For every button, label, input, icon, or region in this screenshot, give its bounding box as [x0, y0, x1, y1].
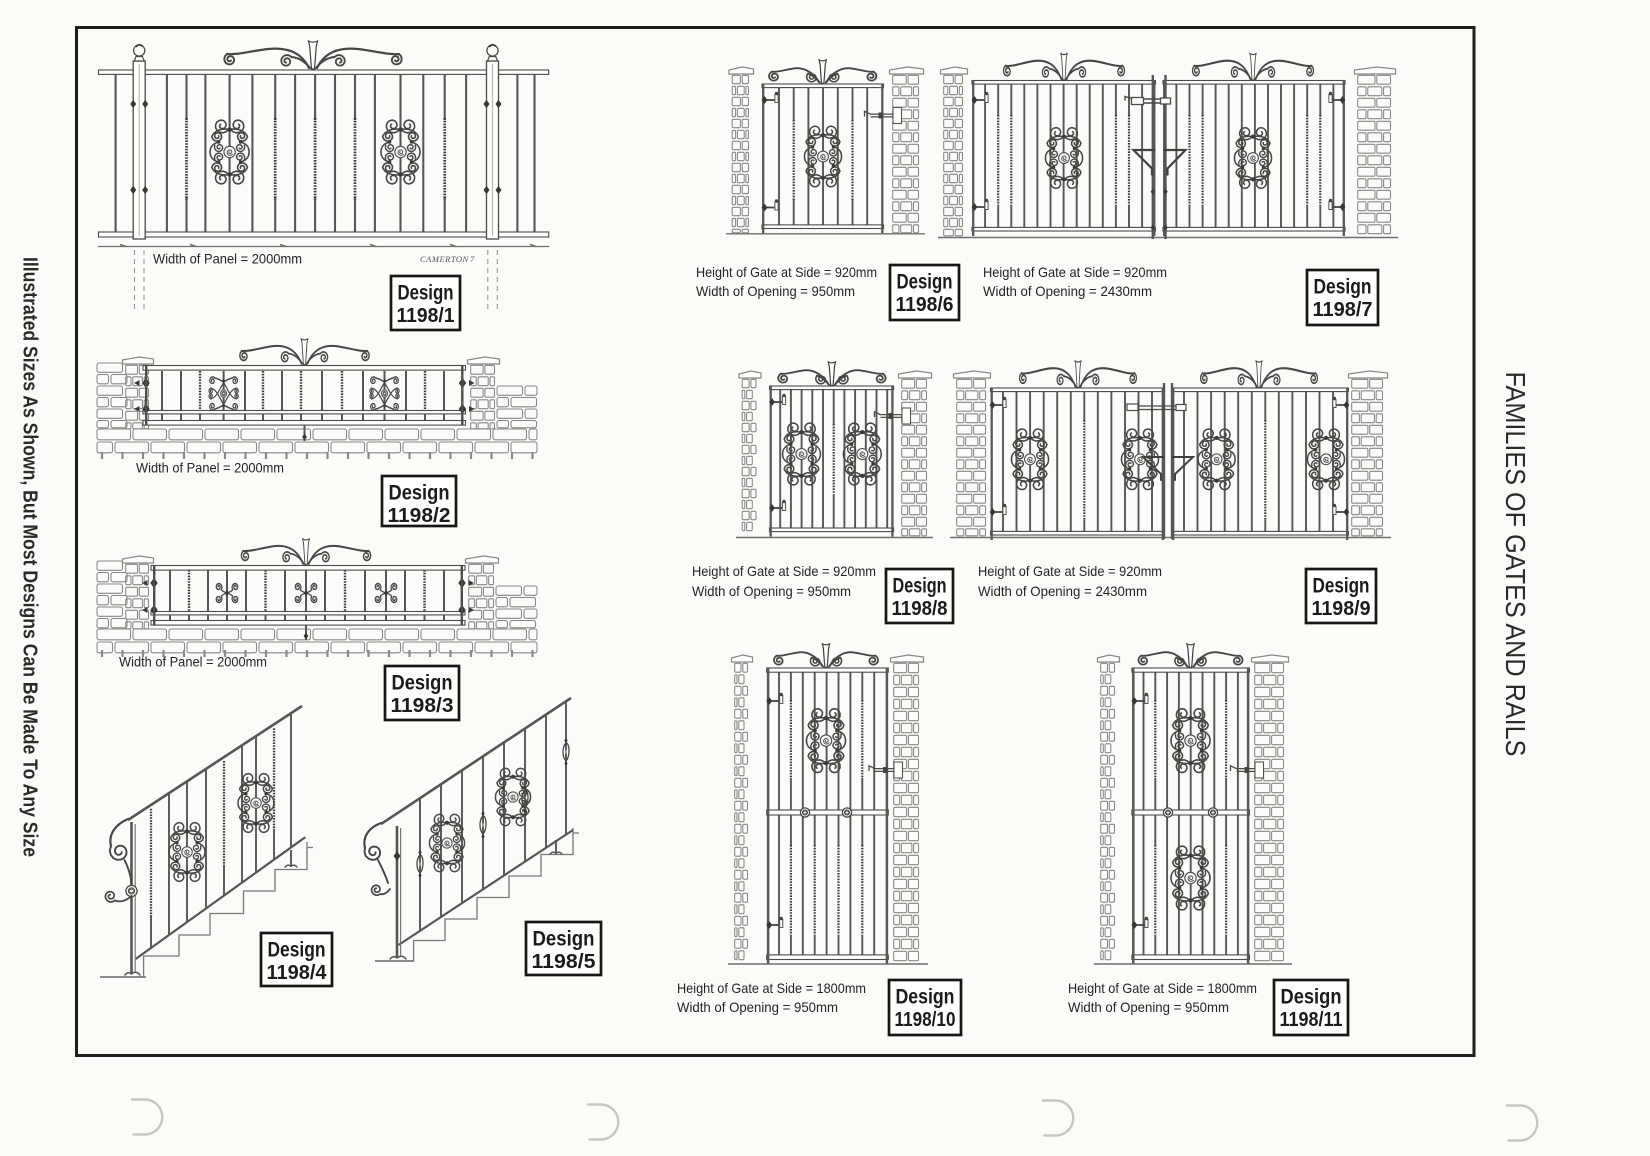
- svg-text:Design: Design: [268, 938, 326, 962]
- svg-text:Design: Design: [398, 281, 454, 305]
- svg-text:Design: Design: [896, 985, 955, 1009]
- svg-text:Height of Gate at Side = 920mm: Height of Gate at Side = 920mm: [696, 264, 877, 280]
- svg-text:Design: Design: [389, 481, 450, 505]
- svg-text:1198/10: 1198/10: [895, 1008, 956, 1031]
- svg-text:1198/6: 1198/6: [896, 293, 954, 316]
- svg-text:Design: Design: [1314, 275, 1372, 299]
- svg-text:1198/4: 1198/4: [267, 961, 328, 984]
- svg-text:Design: Design: [893, 574, 947, 598]
- svg-text:Height of Gate at Side = 920mm: Height of Gate at Side = 920mm: [978, 563, 1162, 579]
- svg-text:Width of Opening = 950mm: Width of Opening = 950mm: [677, 999, 838, 1015]
- svg-text:CAMERTON: CAMERTON: [420, 254, 470, 264]
- svg-text:Height of Gate at Side = 1800m: Height of Gate at Side = 1800mm: [1068, 980, 1257, 996]
- svg-text:Design: Design: [392, 671, 453, 695]
- svg-text:Width of Panel = 2000mm: Width of Panel = 2000mm: [136, 460, 284, 476]
- svg-text:1198/2: 1198/2: [388, 504, 451, 527]
- svg-text:Width of Panel = 2000mm: Width of Panel = 2000mm: [153, 251, 302, 267]
- svg-text:1198/1: 1198/1: [397, 304, 455, 327]
- svg-text:Design: Design: [1313, 574, 1370, 598]
- svg-text:Design: Design: [1281, 985, 1342, 1009]
- svg-text:Height of Gate at Side = 920mm: Height of Gate at Side = 920mm: [983, 264, 1167, 280]
- svg-text:Height of Gate at Side = 920mm: Height of Gate at Side = 920mm: [692, 563, 876, 579]
- svg-text:1198/7: 1198/7: [1313, 298, 1373, 321]
- svg-text:1198/5: 1198/5: [532, 950, 596, 973]
- svg-text:Height of Gate at Side = 1800m: Height of Gate at Side = 1800mm: [677, 980, 866, 996]
- svg-text:Width of Panel = 2000mm: Width of Panel = 2000mm: [119, 654, 267, 670]
- svg-text:Width of Opening = 950mm: Width of Opening = 950mm: [696, 283, 855, 299]
- svg-text:Width of Opening = 2430mm: Width of Opening = 2430mm: [978, 583, 1147, 599]
- svg-text:Design: Design: [897, 270, 953, 294]
- svg-text:FAMILIES OF GATES AND RAILS: FAMILIES OF GATES AND RAILS: [1500, 372, 1531, 757]
- svg-text:1198/9: 1198/9: [1312, 597, 1371, 620]
- svg-text:1198/3: 1198/3: [391, 694, 454, 717]
- svg-text:Design: Design: [533, 927, 595, 951]
- svg-text:1198/11: 1198/11: [1280, 1008, 1343, 1031]
- svg-text:Width of Opening = 2430mm: Width of Opening = 2430mm: [983, 283, 1152, 299]
- svg-text:Width of Opening = 950mm: Width of Opening = 950mm: [692, 583, 851, 599]
- svg-text:1198/8: 1198/8: [892, 597, 948, 620]
- svg-text:Illustrated Sizes As Shown, Bu: Illustrated Sizes As Shown, But Most Des…: [19, 257, 42, 857]
- svg-text:Width of Opening = 950mm: Width of Opening = 950mm: [1068, 999, 1229, 1015]
